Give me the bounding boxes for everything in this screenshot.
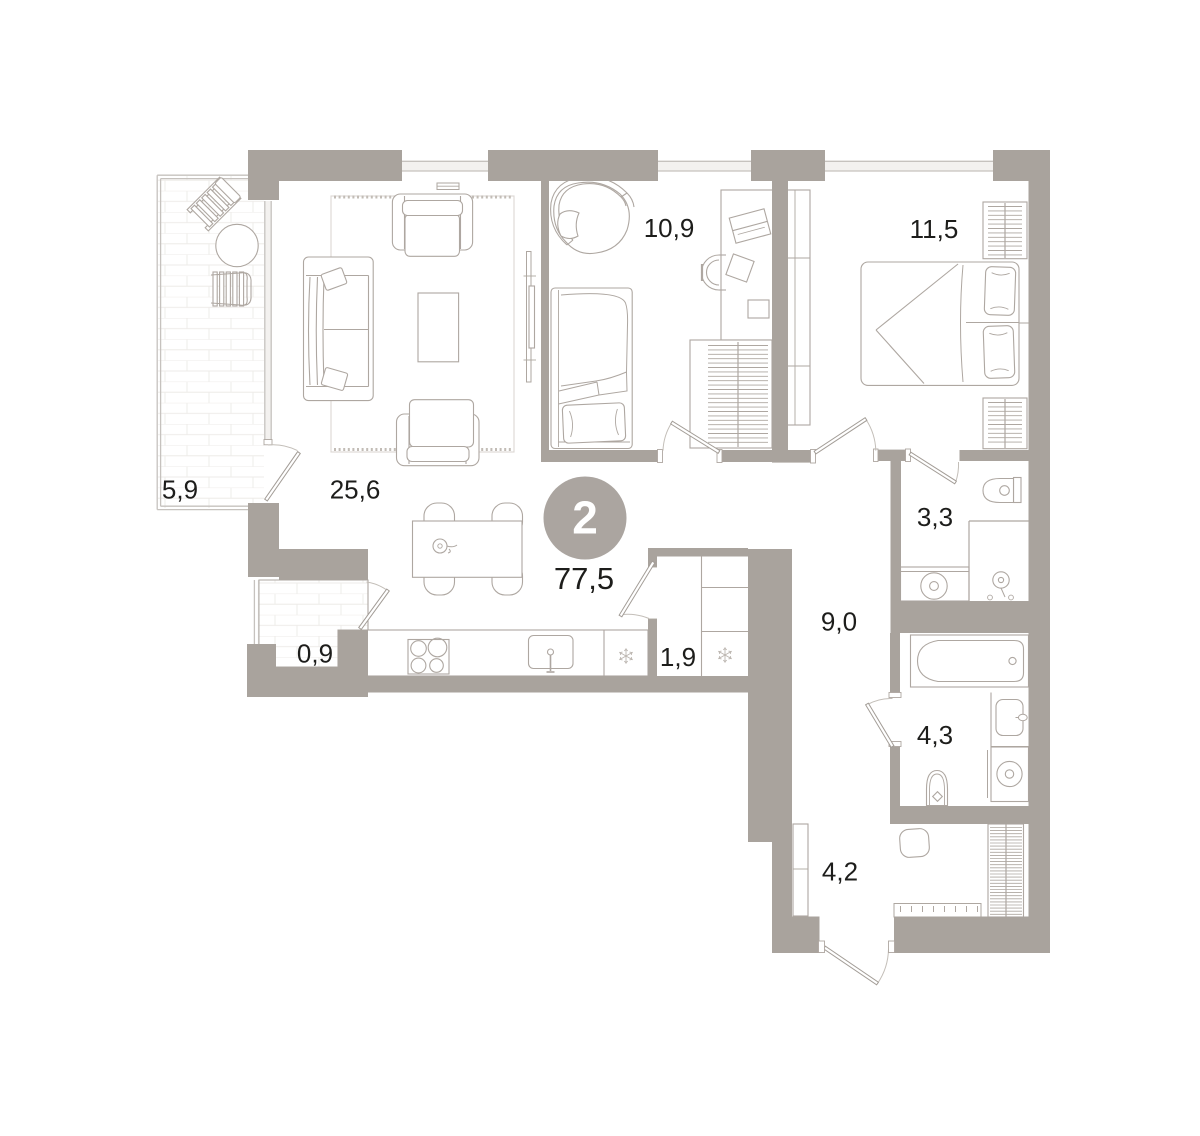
svg-text:1,9: 1,9 <box>660 642 696 672</box>
svg-text:2: 2 <box>572 492 598 544</box>
svg-text:0,9: 0,9 <box>297 639 333 669</box>
svg-text:77,5: 77,5 <box>554 561 614 596</box>
svg-text:4,2: 4,2 <box>822 857 858 887</box>
svg-text:4,3: 4,3 <box>917 720 953 750</box>
svg-text:3,3: 3,3 <box>917 502 953 532</box>
svg-text:10,9: 10,9 <box>644 213 695 243</box>
svg-text:9,0: 9,0 <box>821 607 857 637</box>
svg-text:5,9: 5,9 <box>162 475 198 505</box>
svg-text:25,6: 25,6 <box>330 475 381 505</box>
svg-text:11,5: 11,5 <box>910 214 959 244</box>
